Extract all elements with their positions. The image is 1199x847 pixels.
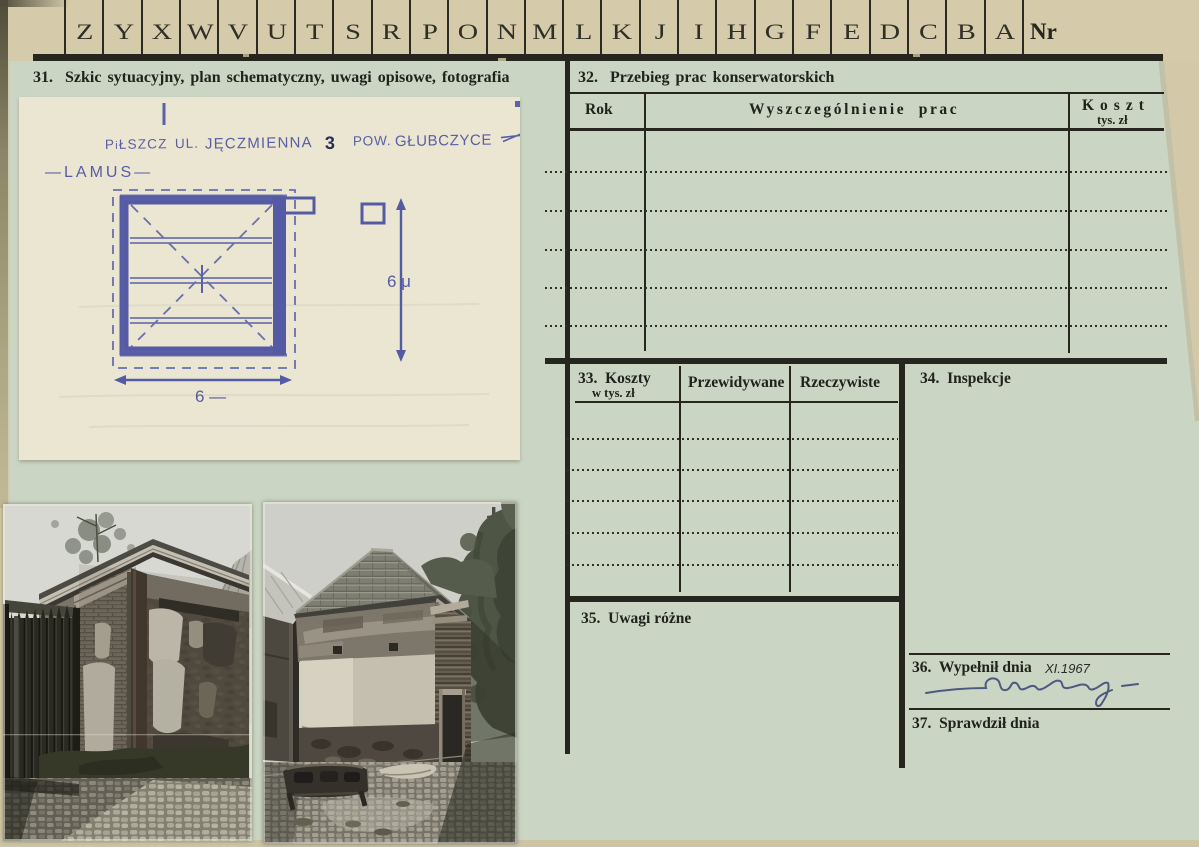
svg-text:JĘCZMIENNA: JĘCZMIENNA: [205, 134, 313, 153]
svg-text:—LAMUS—: —LAMUS—: [45, 164, 153, 181]
svg-text:GŁUBCZYCE: GŁUBCZYCE: [395, 132, 492, 150]
svg-text:UL.: UL.: [175, 136, 199, 151]
svg-text:6 μ: 6 μ: [387, 272, 411, 291]
svg-text:PiŁSZCZ: PiŁSZCZ: [105, 136, 168, 152]
svg-text:6 —: 6 —: [195, 387, 226, 406]
svg-text:3: 3: [325, 133, 335, 153]
svg-text:POW.: POW.: [353, 133, 392, 149]
